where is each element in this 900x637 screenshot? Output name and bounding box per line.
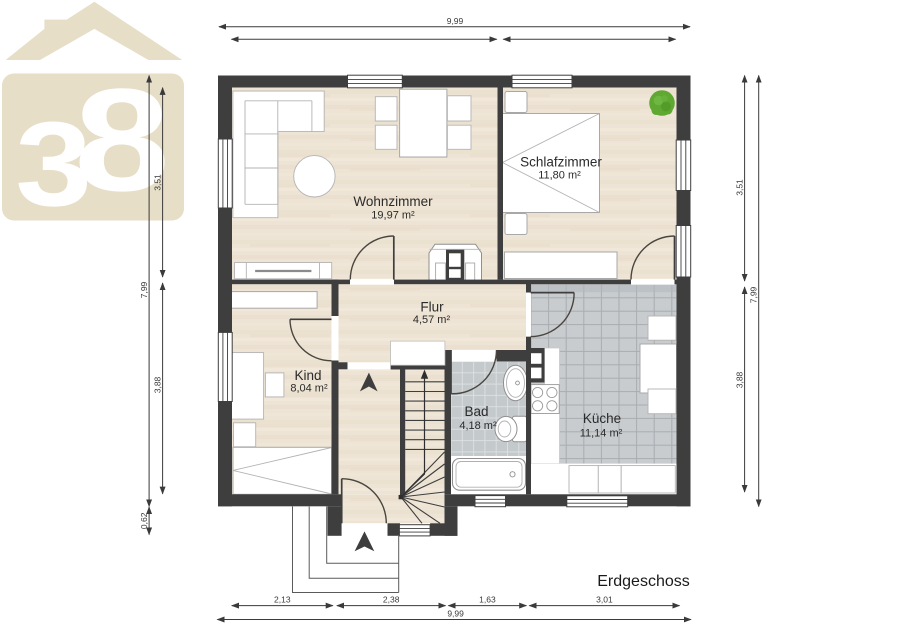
svg-text:3,88: 3,88 [735, 371, 745, 388]
svg-text:Wohnzimmer: Wohnzimmer [353, 194, 433, 209]
svg-text:3,01: 3,01 [596, 594, 613, 604]
svg-text:2,13: 2,13 [274, 594, 291, 604]
svg-text:9,99: 9,99 [447, 608, 464, 618]
svg-text:4,18 m²: 4,18 m² [459, 420, 497, 432]
svg-text:4,57 m²: 4,57 m² [413, 314, 451, 326]
svg-text:0,62: 0,62 [139, 512, 149, 529]
svg-text:2,38: 2,38 [383, 594, 400, 604]
svg-text:Küche: Küche [583, 411, 621, 426]
svg-text:Bad: Bad [464, 404, 488, 419]
svg-text:8,04 m²: 8,04 m² [290, 383, 328, 395]
svg-text:Schlafzimmer: Schlafzimmer [520, 155, 602, 170]
svg-text:11,80 m²: 11,80 m² [538, 170, 581, 182]
svg-text:7,99: 7,99 [139, 281, 149, 298]
svg-text:9,99: 9,99 [447, 16, 464, 26]
svg-text:7,99: 7,99 [749, 286, 759, 303]
svg-text:3,51: 3,51 [153, 174, 163, 191]
svg-text:3,51: 3,51 [735, 179, 745, 196]
svg-text:Flur: Flur [420, 300, 444, 315]
svg-text:11,14 m²: 11,14 m² [580, 428, 623, 440]
svg-text:3,88: 3,88 [153, 376, 163, 393]
svg-text:Erdgeschoss: Erdgeschoss [597, 573, 690, 590]
svg-text:8: 8 [74, 58, 170, 222]
svg-text:1,63: 1,63 [479, 594, 496, 604]
svg-text:19,97 m²: 19,97 m² [371, 210, 415, 222]
svg-text:Kind: Kind [294, 368, 321, 383]
